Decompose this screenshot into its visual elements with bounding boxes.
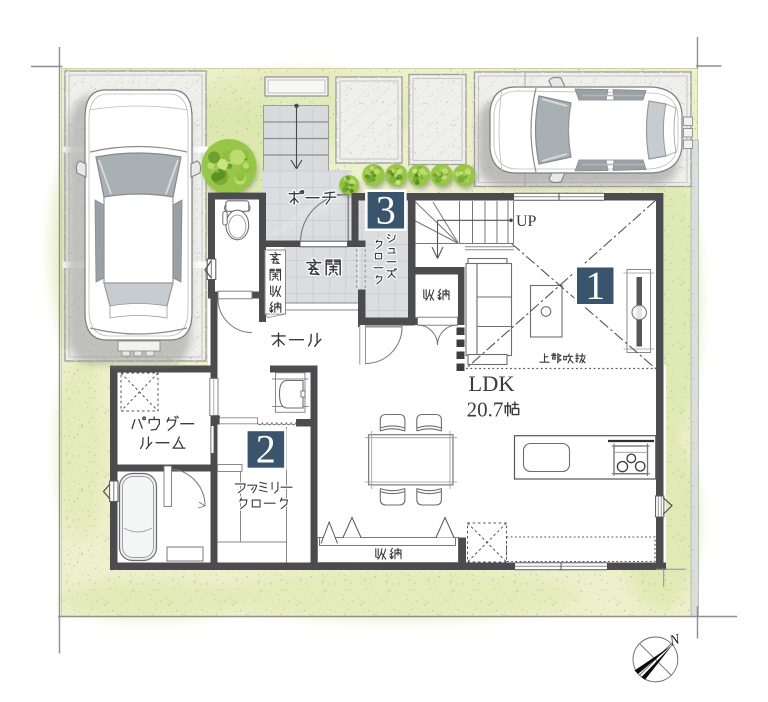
svg-text:UP: UP bbox=[516, 213, 537, 230]
svg-text:1: 1 bbox=[585, 263, 605, 308]
svg-text:3: 3 bbox=[376, 188, 396, 233]
svg-text:2: 2 bbox=[256, 427, 276, 472]
svg-text:LDK: LDK bbox=[468, 371, 515, 396]
svg-text:20.7: 20.7 bbox=[467, 398, 504, 422]
